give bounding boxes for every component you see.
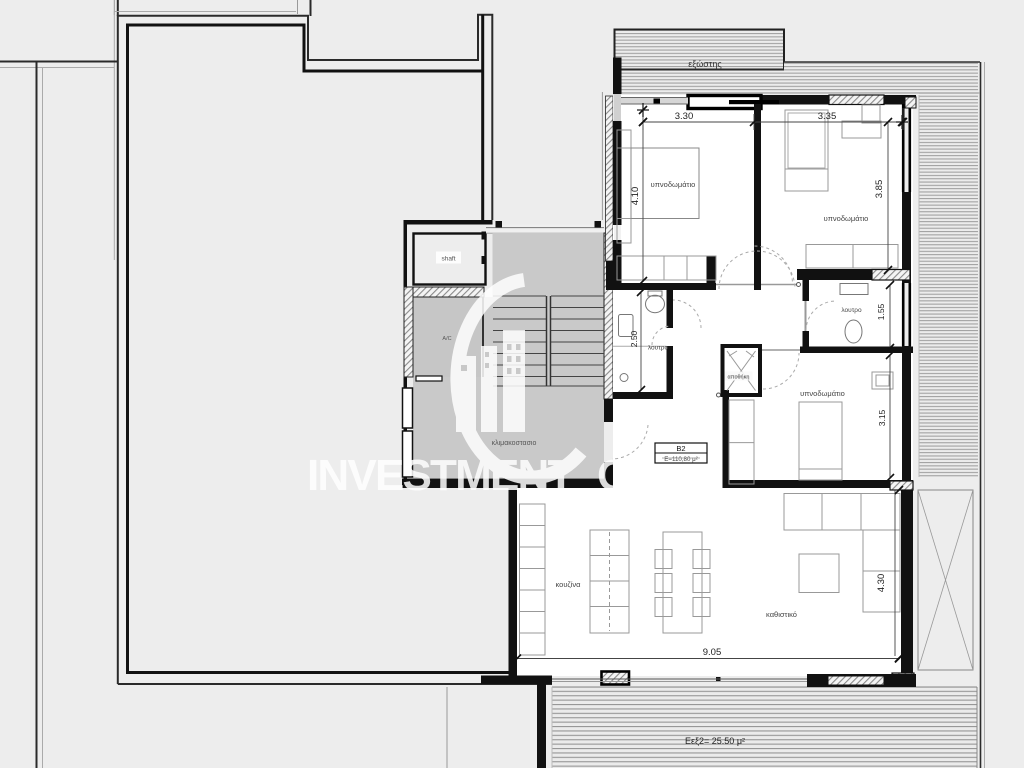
- svg-text:λουτρο: λουτρο: [648, 345, 669, 352]
- svg-text:κουζίνα: κουζίνα: [556, 580, 582, 589]
- svg-text:υπνοδωμάτιο: υπνοδωμάτιο: [651, 180, 696, 189]
- svg-text:3.30: 3.30: [675, 111, 694, 122]
- svg-text:9.05: 9.05: [703, 647, 722, 658]
- svg-text:Εεξ2= 25.50 μ²: Εεξ2= 25.50 μ²: [685, 736, 745, 746]
- svg-text:καθιστικό: καθιστικό: [766, 610, 797, 619]
- svg-text:3.15: 3.15: [877, 409, 887, 426]
- svg-text:A/C: A/C: [442, 336, 451, 342]
- svg-text:4.30: 4.30: [876, 574, 887, 593]
- svg-text:4.10: 4.10: [630, 187, 641, 206]
- svg-text:E=110,80 μ²: E=110,80 μ²: [664, 456, 698, 463]
- svg-text:υπνοδωμάτιο: υπνοδωμάτιο: [824, 214, 869, 223]
- svg-text:υπνοδωμάτιο: υπνοδωμάτιο: [800, 389, 845, 398]
- svg-text:INVESTMENT: INVESTMENT: [307, 451, 574, 500]
- svg-text:1.55: 1.55: [876, 303, 886, 320]
- svg-text:2.50: 2.50: [629, 330, 639, 347]
- svg-text:αποθήκη: αποθήκη: [728, 374, 750, 381]
- svg-text:shaft: shaft: [441, 256, 455, 263]
- svg-text:G: G: [597, 451, 631, 500]
- svg-text:3.85: 3.85: [874, 180, 885, 199]
- svg-text:κλιμακοστασιο: κλιμακοστασιο: [492, 440, 537, 447]
- svg-text:εξώστης: εξώστης: [688, 59, 722, 69]
- svg-text:B2: B2: [676, 444, 685, 453]
- svg-text:λουτρο: λουτρο: [841, 307, 862, 314]
- svg-text:3.35: 3.35: [818, 111, 837, 122]
